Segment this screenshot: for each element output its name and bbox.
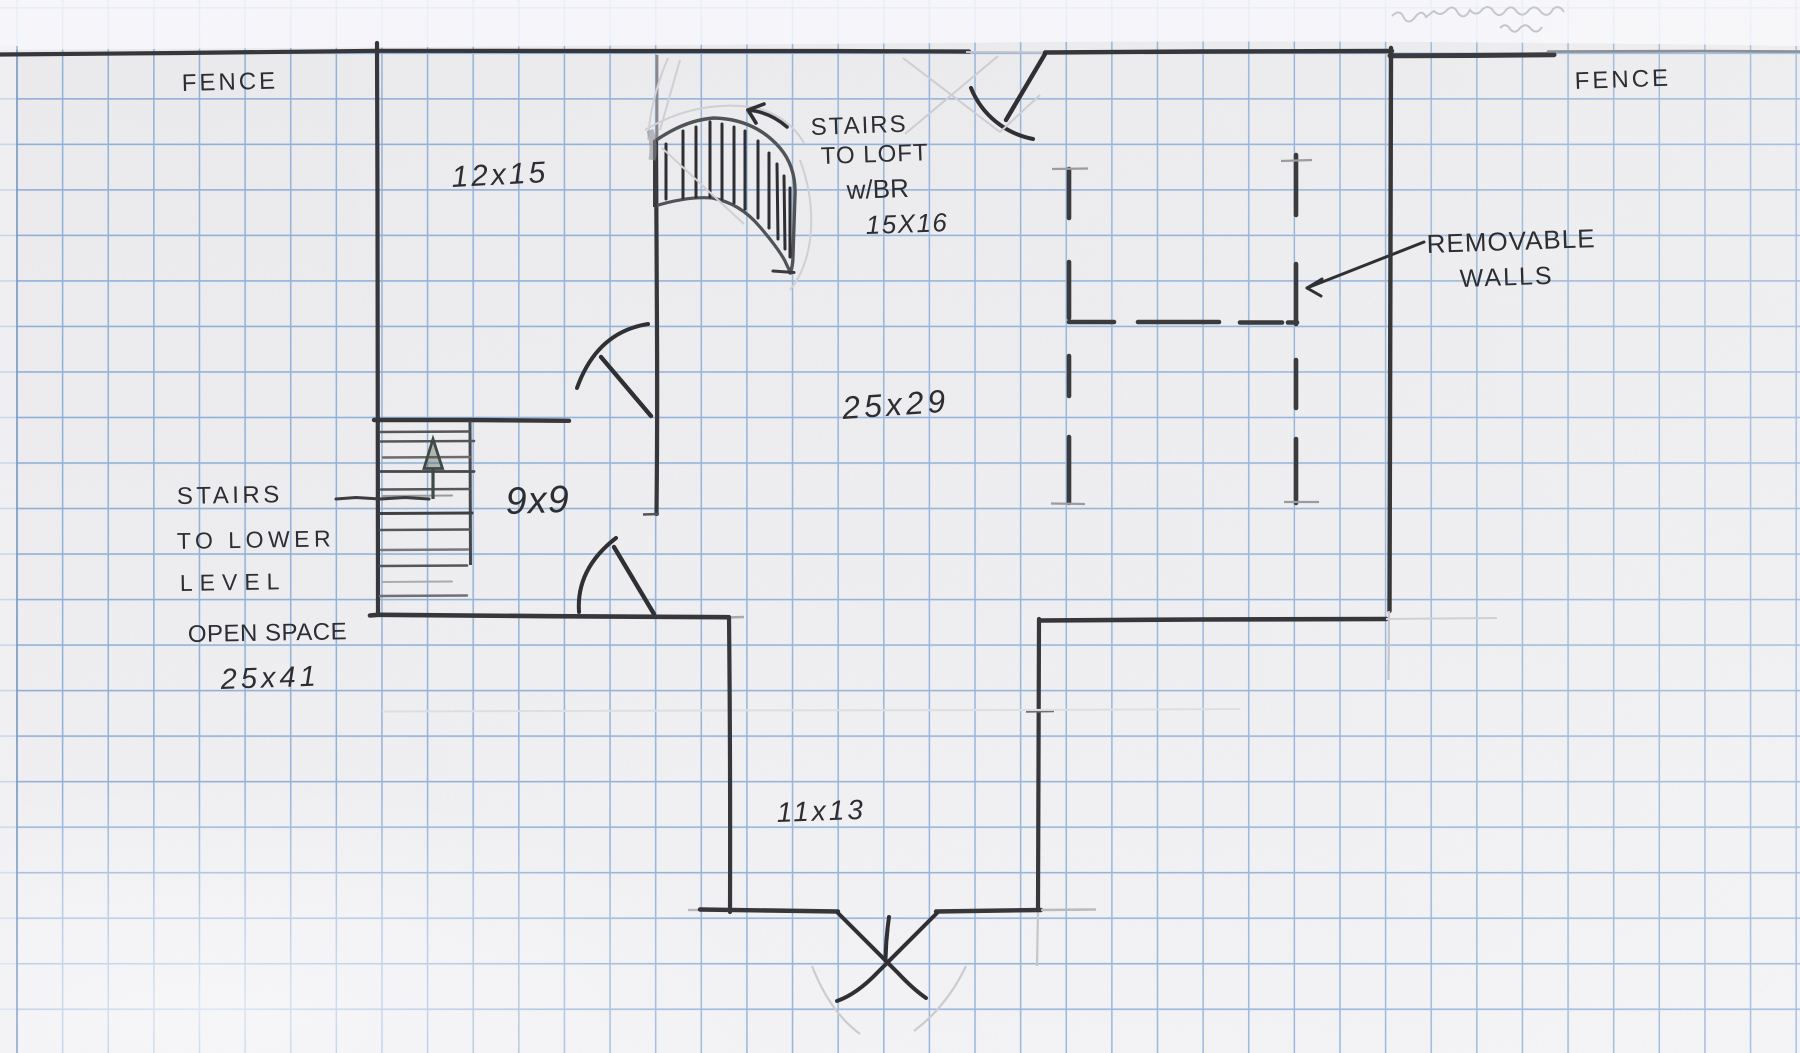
- svg-text:25x29: 25x29: [840, 383, 950, 426]
- svg-text:15X16: 15X16: [865, 207, 949, 240]
- svg-text:11x13: 11x13: [776, 794, 866, 828]
- svg-text:LEVEL: LEVEL: [180, 568, 287, 596]
- svg-text:OPEN SPACE: OPEN SPACE: [188, 618, 348, 648]
- svg-text:FENCE: FENCE: [1574, 65, 1671, 95]
- svg-text:STAIRS: STAIRS: [810, 111, 908, 141]
- svg-text:TO LOWER: TO LOWER: [177, 525, 336, 554]
- svg-text:25x41: 25x41: [219, 661, 320, 696]
- svg-text:FENCE: FENCE: [181, 67, 278, 97]
- svg-text:w/BR: w/BR: [845, 173, 909, 205]
- svg-text:9x9: 9x9: [505, 479, 571, 523]
- svg-text:12x15: 12x15: [451, 156, 549, 194]
- svg-text:TO LOFT: TO LOFT: [820, 139, 929, 170]
- svg-text:WALLS: WALLS: [1459, 262, 1554, 293]
- svg-text:STAIRS: STAIRS: [177, 481, 283, 510]
- svg-text:REMOVABLE: REMOVABLE: [1426, 223, 1596, 259]
